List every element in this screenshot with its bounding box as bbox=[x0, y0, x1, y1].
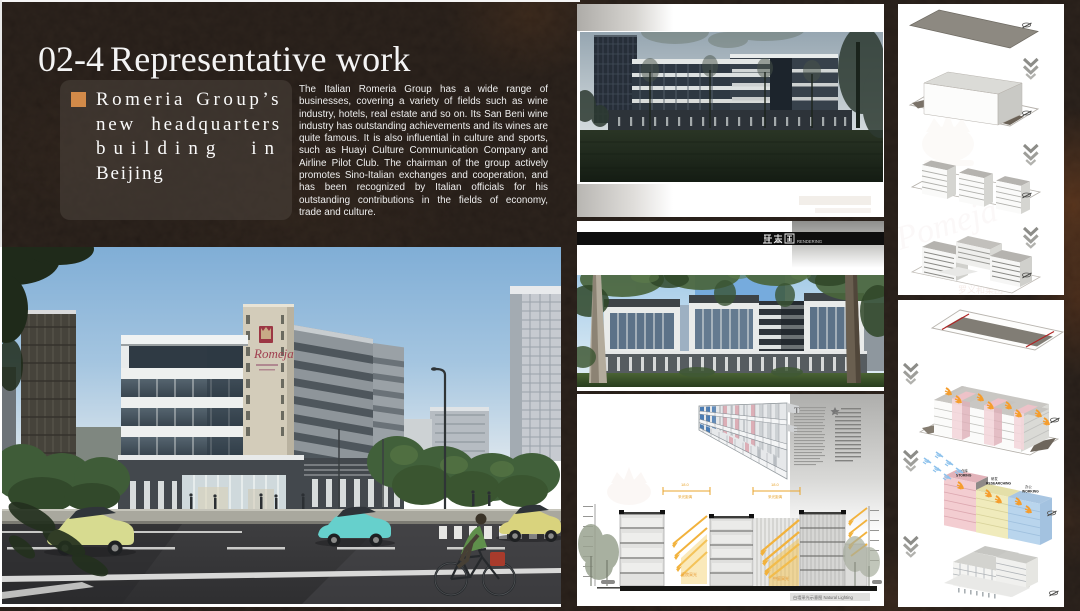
svg-text:办公: 办公 bbox=[1025, 484, 1032, 489]
svg-text:RENDERING: RENDERING bbox=[797, 239, 822, 244]
svg-text:白墙采光示意图 Natural Lighting: 白墙采光示意图 Natural Lighting bbox=[793, 594, 853, 601]
svg-text:WORKING: WORKING bbox=[1022, 490, 1039, 494]
svg-text:18.0: 18.0 bbox=[681, 482, 690, 487]
svg-text:Romeja: Romeja bbox=[253, 346, 294, 361]
svg-text:采光距离: 采光距离 bbox=[768, 494, 783, 499]
svg-text:18.0: 18.0 bbox=[771, 482, 780, 487]
svg-text:研发: 研发 bbox=[991, 476, 998, 481]
svg-text:采光距离: 采光距离 bbox=[678, 494, 693, 499]
svg-text:中庭采光: 中庭采光 bbox=[773, 575, 789, 581]
svg-text:T: T bbox=[794, 406, 800, 416]
svg-text:STORING: STORING bbox=[956, 474, 972, 478]
svg-text:RESEARCHING: RESEARCHING bbox=[986, 482, 1011, 486]
svg-text:庭院采光: 庭院采光 bbox=[681, 571, 697, 577]
